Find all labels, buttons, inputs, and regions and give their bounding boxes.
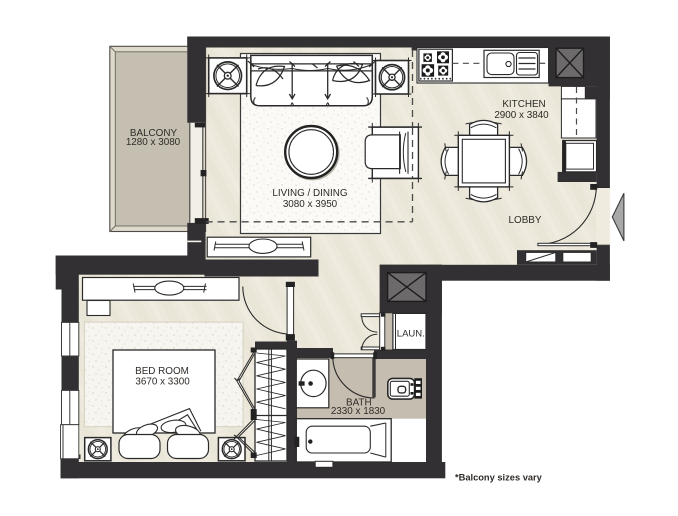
svg-text:LIVING / DINING: LIVING / DINING xyxy=(272,188,347,199)
svg-text:BED ROOM: BED ROOM xyxy=(135,366,189,377)
svg-text:LOBBY: LOBBY xyxy=(509,215,542,226)
svg-text:2330 x 1830: 2330 x 1830 xyxy=(331,406,386,417)
svg-text:3080 x 3950: 3080 x 3950 xyxy=(283,199,338,210)
svg-text:2900 x 3840: 2900 x 3840 xyxy=(494,110,549,121)
svg-text:*Balcony sizes vary: *Balcony sizes vary xyxy=(455,473,543,483)
svg-text:KITCHEN: KITCHEN xyxy=(502,99,545,110)
svg-text:3670 x 3300: 3670 x 3300 xyxy=(135,376,190,387)
svg-text:LAUN.: LAUN. xyxy=(397,328,425,339)
svg-text:1280 x 3080: 1280 x 3080 xyxy=(126,137,181,148)
